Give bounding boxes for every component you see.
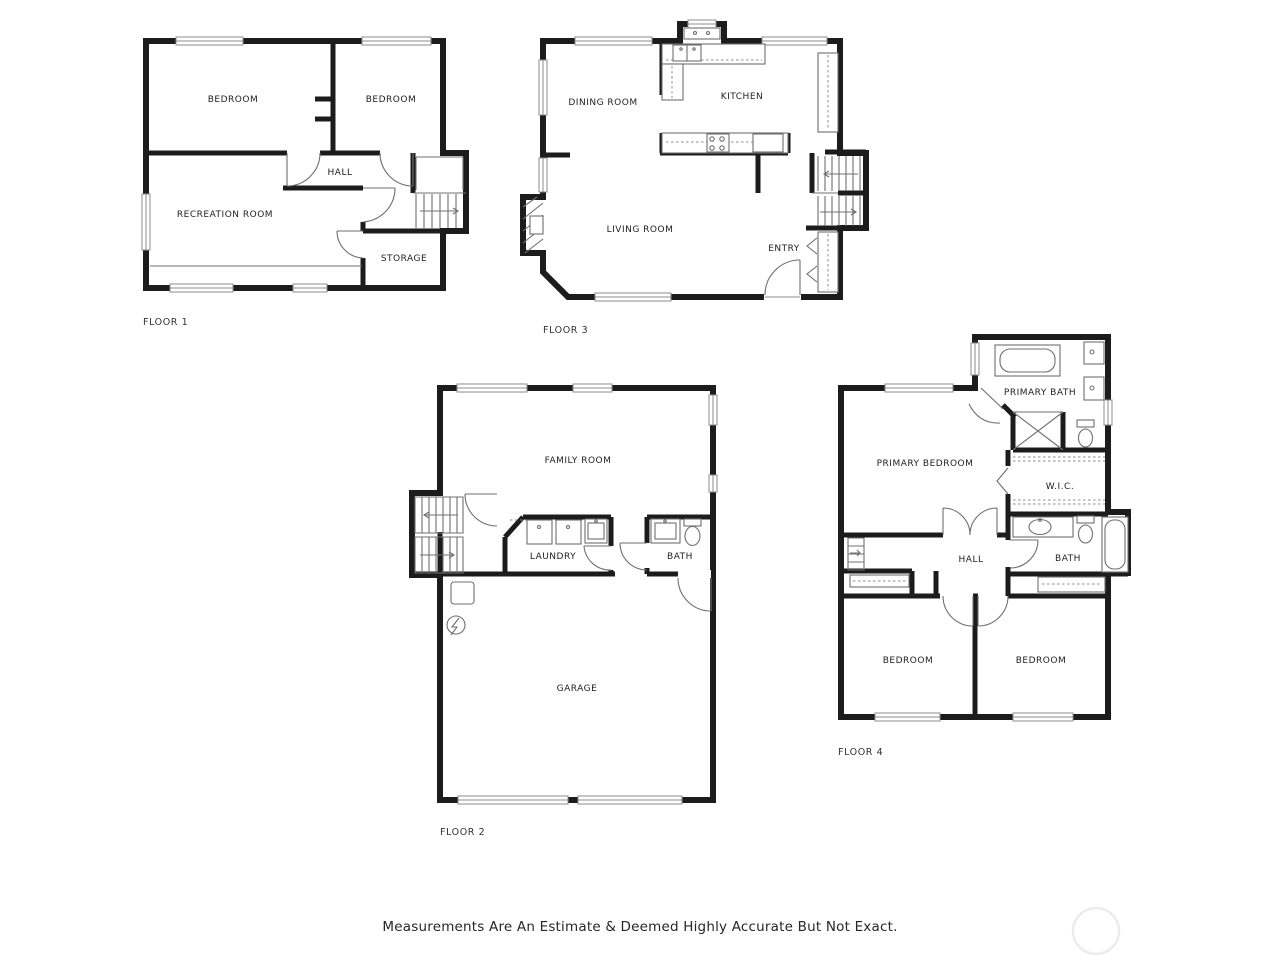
floor2-bath-label: BATH [667,552,693,562]
dryer-icon [556,520,581,544]
floor1-hall-label: HALL [328,168,353,178]
washer-icon [527,520,552,544]
floor3-living-room-label: LIVING ROOM [607,225,674,235]
floor1-storage-label: STORAGE [381,254,427,264]
floor4-title: FLOOR 4 [838,747,883,758]
floor3-entry-label: ENTRY [768,244,800,254]
floor4-bath-label: BATH [1055,554,1081,564]
floor4-primary-bedroom-label: PRIMARY BEDROOM [877,459,974,469]
toilet-icon [684,519,701,526]
disclaimer-text: Measurements Are An Estimate & Deemed Hi… [382,919,897,935]
floor2-title: FLOOR 2 [440,827,485,838]
pantry-cabinet [818,53,838,132]
kitchen-island [662,133,788,153]
bedroom-closet [1038,577,1105,592]
floor4-wic-label: W.I.C. [1046,482,1074,492]
floor2-garage-label: GARAGE [557,684,598,694]
water-heater-icon [451,582,474,604]
floor2-bath-fixtures [651,519,701,546]
floor1-bedroom-right-label: BEDROOM [366,95,416,105]
electrical-panel-icon [447,616,465,634]
floor4-hall-label: HALL [959,555,984,565]
floor1-recreation-room-label: RECREATION ROOM [177,210,273,220]
floor3-title: FLOOR 3 [543,325,588,336]
page-background [0,0,1280,960]
hall-closet [850,575,909,587]
floor3-kitchen-label: KITCHEN [721,92,764,102]
floor2-family-room-label: FAMILY ROOM [545,456,612,466]
floor3-dining-room-label: DINING ROOM [568,98,637,108]
oven-icon [684,28,720,39]
kitchen-sink-icon [673,45,701,61]
floor4-bedroom-right-label: BEDROOM [1016,656,1066,666]
floor4-primary-bath-label: PRIMARY BATH [1004,388,1076,398]
floor4-bedroom-left-label: BEDROOM [883,656,933,666]
floor2-laundry-label: LAUNDRY [530,552,576,562]
floorplan-canvas: BEDROOM BEDROOM HALL RECREATION ROOM STO… [0,0,1280,960]
floor1-title: FLOOR 1 [143,317,188,328]
toilet-icon [1077,420,1094,427]
toilet-icon [1077,516,1094,523]
floor1-bedroom-left-label: BEDROOM [208,95,258,105]
